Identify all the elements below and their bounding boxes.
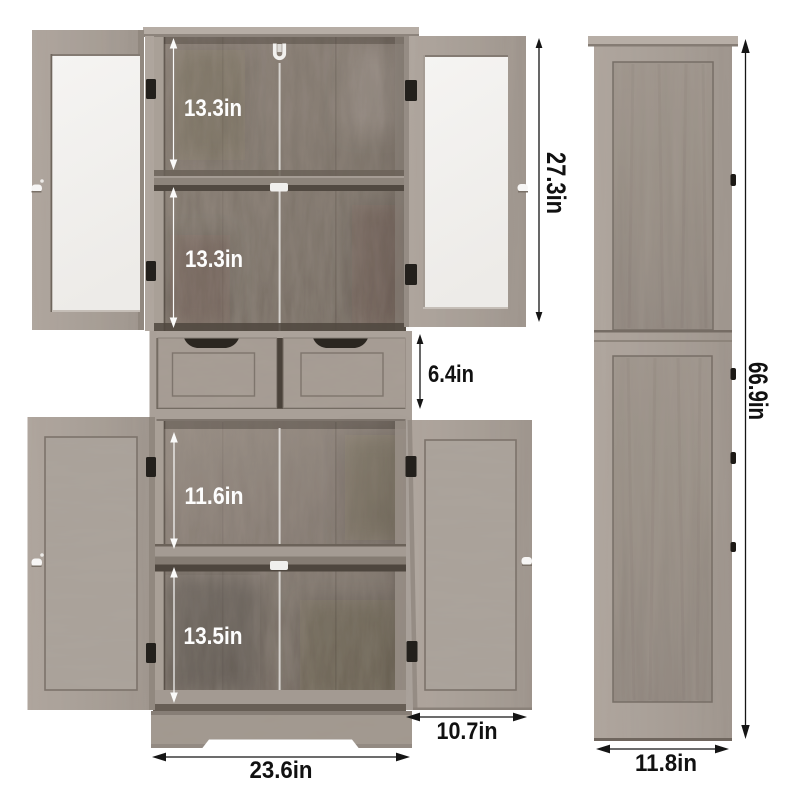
svg-text:23.6in: 23.6in bbox=[250, 757, 313, 784]
svg-text:6.4in: 6.4in bbox=[428, 361, 474, 388]
svg-text:66.9in: 66.9in bbox=[743, 362, 773, 420]
svg-text:13.3in: 13.3in bbox=[184, 95, 242, 122]
svg-text:11.8in: 11.8in bbox=[635, 750, 697, 777]
svg-text:11.6in: 11.6in bbox=[185, 483, 244, 510]
svg-text:13.3in: 13.3in bbox=[185, 246, 243, 273]
svg-text:10.7in: 10.7in bbox=[437, 718, 498, 745]
svg-text:13.5in: 13.5in bbox=[184, 623, 243, 650]
svg-text:27.3in: 27.3in bbox=[541, 152, 571, 214]
